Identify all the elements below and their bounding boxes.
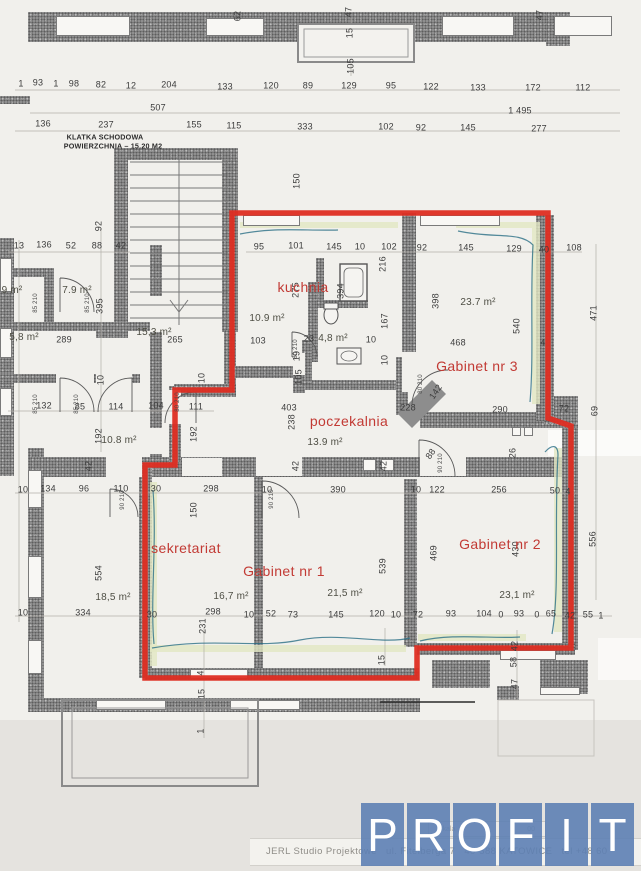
logo-tile-t: T (591, 803, 634, 866)
label-layer: 6247151054719319882122041331208912995122… (0, 0, 641, 871)
door-size-label: 85 210 (33, 394, 39, 414)
dimension-label: 403 (281, 404, 297, 413)
room-area-label: 16,7 m² (213, 592, 248, 602)
dimension-label: 155 (186, 121, 202, 130)
dimension-label: 136 (36, 241, 52, 250)
room-area-label: 23,1 m² (499, 591, 534, 601)
dimension-label: 145 (458, 244, 474, 253)
dimension-label: 398 (432, 293, 441, 309)
dimension-label: 47 (536, 10, 545, 20)
dimension-label: 1 (197, 728, 206, 733)
dimension-label: 69 (591, 406, 600, 416)
dimension-label: 228 (400, 404, 416, 413)
dimension-label: 277 (531, 125, 547, 134)
room-label-gabinet-nr-2: Gabinet nr 2 (459, 537, 541, 551)
dimension-label: 55 (583, 611, 593, 620)
dimension-label: 73 (288, 611, 298, 620)
dimension-label: 42 (380, 461, 389, 471)
dimension-label: 65 (546, 610, 556, 619)
dimension-label: 204 (161, 81, 177, 90)
dimension-label: 10 (18, 486, 28, 495)
dimension-label: 92 (416, 124, 426, 133)
stairwell-note-line2: POWIERZCHNIA – 15.20 M2 (64, 142, 163, 151)
dimension-label: 12 (126, 82, 136, 91)
dimension-label: 15 (346, 28, 355, 38)
dimension-label: 114 (109, 403, 124, 412)
dimension-label: 10 (198, 373, 207, 383)
dimension-label: 142 (428, 383, 444, 401)
logo-tile-f: F (499, 803, 542, 866)
dimension-label: 95 (254, 243, 264, 252)
door-size-label: 90 210 (269, 489, 275, 509)
dimension-label: 133 (217, 83, 233, 92)
dimension-label: 92 (95, 221, 104, 231)
dimension-label: 72 (559, 405, 569, 414)
door-size-label: 80 210 (175, 392, 181, 412)
dimension-label: 0 (498, 611, 503, 620)
logo-tile-o: O (453, 803, 496, 866)
dimension-label: 1 495 (508, 107, 532, 116)
door-size-label: 90 210 (438, 453, 444, 473)
dimension-label: 237 (98, 121, 114, 130)
room-area-label: 4,8 m² (318, 334, 348, 344)
dimension-label: 102 (378, 123, 394, 132)
dimension-label: 52 (266, 610, 276, 619)
dimension-label: 102 (381, 243, 397, 252)
dimension-label: 105 (347, 58, 356, 74)
room-area-label: 10.8 m² (101, 436, 136, 446)
room-area-label: 18,5 m² (95, 593, 130, 603)
dimension-label: 298 (205, 608, 221, 617)
dimension-label: 122 (429, 486, 445, 495)
dimension-label: 42 (116, 242, 126, 251)
dimension-label: 10 (97, 375, 106, 385)
logo-tile-r: R (407, 803, 450, 866)
dimension-label: 4 (540, 339, 545, 348)
dimension-label: 334 (75, 609, 91, 618)
dimension-label: 172 (525, 84, 541, 93)
room-area-label: 7.9 m² (62, 286, 92, 296)
dimension-label: 92 (417, 244, 427, 253)
dimension-label: 72 (413, 611, 423, 620)
dimension-label: 111 (189, 403, 203, 412)
room-area-label: 15,3 m² (136, 328, 171, 338)
room-label-gabinet-nr-1: Gabinet nr 1 (243, 564, 325, 578)
dimension-label: 238 (288, 414, 297, 430)
dimension-label: 298 (203, 485, 219, 494)
dimension-label: 10 (18, 609, 28, 618)
dimension-label: 231 (199, 618, 208, 634)
dimension-label: 23 (304, 335, 314, 344)
dimension-label: 390 (330, 486, 346, 495)
dimension-label: 136 (35, 120, 51, 129)
room-area-label: 23.7 m² (460, 298, 495, 308)
dimension-label: 115 (227, 122, 242, 131)
dimension-label: 95 (386, 82, 396, 91)
dimension-label: 10 (355, 243, 365, 252)
floor-plan: 6247151054719319882122041331208912995122… (0, 0, 641, 871)
room-area-label: 9 m² (2, 286, 23, 296)
dimension-label: 129 (341, 82, 357, 91)
dimension-label: 256 (491, 486, 507, 495)
dimension-label: 150 (190, 502, 199, 518)
room-area-label: 21,5 m² (327, 589, 362, 599)
dimension-label: 47 (511, 679, 520, 689)
dimension-label: 104 (476, 610, 492, 619)
dimension-label: 1 (53, 80, 58, 89)
door-size-label: 85 210 (33, 293, 39, 313)
dimension-label: 133 (470, 84, 486, 93)
door-size-label: 80 210 (293, 339, 299, 359)
dimension-label: 112 (576, 84, 591, 93)
dimension-label: 539 (379, 558, 388, 574)
dimension-label: 26 (509, 448, 518, 458)
room-label-kuchnia: kuchnia (277, 280, 328, 294)
room-area-label: 13.9 m² (307, 438, 342, 448)
logo-tile-p: P (361, 803, 404, 866)
dimension-label: 192 (190, 426, 199, 442)
dimension-label: 167 (381, 313, 390, 329)
dimension-label: 145 (326, 243, 342, 252)
dimension-label: 42 (292, 461, 301, 471)
dimension-label: 108 (566, 244, 582, 253)
dimension-label: 394 (337, 283, 346, 299)
dimension-label: 93 (33, 79, 43, 88)
dimension-label: 89 (303, 82, 313, 91)
dimension-label: 1 (598, 612, 603, 621)
dimension-label: 134 (40, 485, 56, 494)
dimension-label: 30 (147, 611, 157, 620)
dimension-label: 507 (150, 104, 166, 113)
dimension-label: 93 (514, 610, 524, 619)
dimension-label: 556 (589, 531, 598, 547)
dimension-label: 120 (263, 82, 279, 91)
dimension-label: 216 (379, 256, 388, 272)
dimension-label: 30 (151, 485, 161, 494)
dimension-label: 10 (244, 611, 254, 620)
dimension-label: 42 (85, 461, 94, 471)
room-label-poczekalnia: poczekalnia (310, 414, 388, 428)
dimension-label: 129 (506, 245, 522, 254)
room-area-label: 10.9 m² (249, 314, 284, 324)
dimension-label: 540 (513, 318, 522, 334)
dimension-label: 15 (378, 655, 387, 665)
dimension-label: 40 (539, 246, 549, 255)
dimension-label: 50 (550, 487, 560, 496)
dimension-label: 62 (234, 11, 243, 21)
stairwell-note-line1: KLATKA SCHODOWA (67, 133, 144, 142)
dimension-label: 10 (391, 611, 401, 620)
dimension-label: 88 (424, 447, 437, 461)
dimension-label: 471 (590, 305, 599, 321)
door-size-label: 90 210 (120, 490, 126, 510)
dimension-label: 42 (565, 612, 575, 621)
dimension-label: 88 (92, 242, 102, 251)
dimension-label: 0 (534, 611, 539, 620)
dimension-label: 120 (369, 610, 385, 619)
door-size-label: 85 210 (74, 394, 80, 414)
dimension-label: 4 (197, 670, 206, 675)
dimension-label: 468 (450, 339, 466, 348)
dimension-label: 10 (381, 355, 390, 365)
dimension-label: 10 (366, 336, 376, 345)
dimension-label: 82 (96, 81, 106, 90)
room-label-sekretariat: sekretariat (151, 541, 221, 555)
dimension-label: 104 (148, 402, 164, 411)
dimension-label: 96 (79, 485, 89, 494)
dimension-label: 290 (492, 406, 508, 415)
profit-logo: PROFIT (361, 803, 634, 866)
room-area-label: 5,8 m² (9, 333, 39, 343)
dimension-label: 58 (510, 657, 519, 667)
dimension-label: 42 (511, 641, 520, 651)
dimension-label: 47 (345, 7, 354, 17)
dimension-label: 395 (96, 298, 105, 314)
dimension-label: 101 (288, 242, 304, 251)
dimension-label: 122 (423, 83, 439, 92)
door-size-label: 80 210 (418, 374, 424, 394)
dimension-label: 469 (430, 545, 439, 561)
dimension-label: 93 (446, 610, 456, 619)
door-size-label: 85 210 (85, 293, 91, 313)
dimension-label: 150 (293, 173, 302, 189)
dimension-label: 98 (69, 80, 79, 89)
dimension-label: 10 (411, 486, 421, 495)
dimension-label: 145 (460, 124, 476, 133)
logo-tile-i: I (545, 803, 588, 866)
dimension-label: 4 (565, 488, 570, 497)
dimension-label: 333 (297, 123, 313, 132)
dimension-label: 289 (56, 336, 72, 345)
dimension-label: 1 (18, 80, 23, 89)
dimension-label: 15 (198, 689, 207, 699)
dimension-label: 13 (14, 242, 24, 251)
dimension-label: 103 (250, 337, 266, 346)
dimension-label: 145 (328, 611, 344, 620)
room-label-gabinet-nr-3: Gabinet nr 3 (436, 359, 518, 373)
dimension-label: 554 (95, 565, 104, 581)
dimension-label: 105 (295, 369, 304, 385)
dimension-label: 52 (66, 242, 76, 251)
